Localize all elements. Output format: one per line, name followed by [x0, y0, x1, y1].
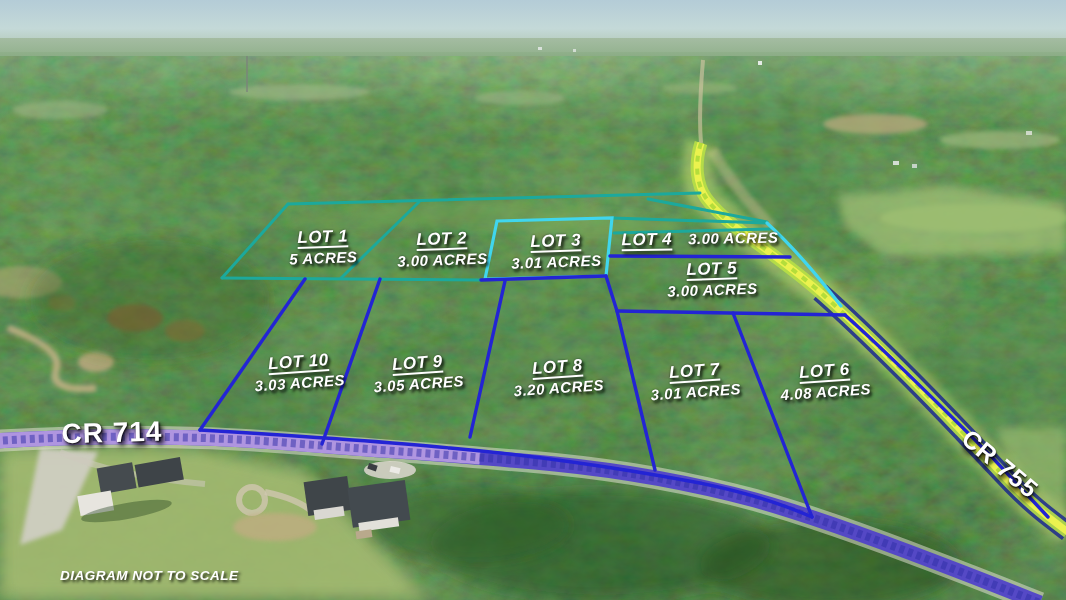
lot4-lot5-divider — [610, 256, 790, 257]
aerial-photo-background — [0, 0, 1066, 600]
lot1-lot2-south-boundary — [222, 278, 481, 280]
aerial-lot-map: LOT 1 5 ACRES LOT 2 3.00 ACRES LOT 3 3.0… — [0, 0, 1066, 600]
neighborhood — [0, 448, 430, 600]
map-canvas — [0, 0, 1066, 600]
